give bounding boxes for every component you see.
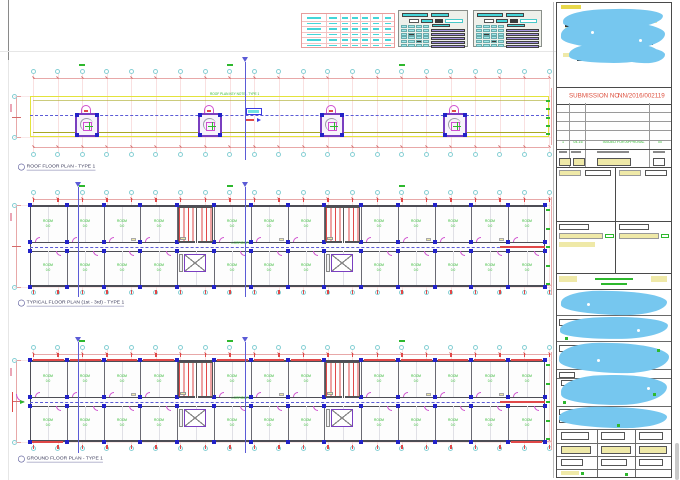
green-speck [657, 349, 660, 352]
schedule-cell [416, 36, 422, 39]
dimension-text-mark [10, 368, 12, 376]
schedule-cell [416, 25, 422, 28]
schedule-cell [483, 33, 489, 36]
column [396, 285, 400, 289]
schedule-cell [408, 36, 414, 39]
bottom-grid-line [635, 429, 636, 477]
column [506, 404, 510, 408]
room-label: ROOM [116, 418, 127, 422]
elevator-core [184, 409, 206, 427]
door-arc [35, 392, 40, 397]
table-text-mark [362, 39, 368, 41]
wall-tick [524, 445, 526, 449]
revision-table-bottom [557, 149, 671, 150]
table-grid-line [302, 43, 394, 44]
column [359, 440, 363, 444]
room-label: 0.0 [374, 224, 385, 228]
revision-col-line [649, 103, 650, 167]
schedule-cell [401, 25, 407, 28]
blob-redaction [560, 316, 668, 340]
grid-bubble [375, 190, 380, 195]
column [322, 440, 326, 444]
vent-pipe-mark [84, 110, 88, 112]
door-arc [366, 237, 371, 242]
column [65, 203, 69, 207]
schedule-header-chip [510, 19, 518, 23]
schedule-cell [498, 44, 504, 47]
room-label: 0.0 [411, 379, 422, 383]
highlighted-wall [33, 359, 64, 361]
label-box [639, 432, 663, 440]
wall-tick [352, 290, 354, 294]
label-box [645, 170, 667, 176]
partition-wall [471, 362, 472, 397]
door-arc [72, 392, 77, 397]
room-label: ROOM [116, 219, 127, 223]
roof-plan-title: ROOF FLOOR PLAN - TYPE 1 [18, 163, 95, 170]
grid-bubble [497, 69, 502, 74]
grid-bubble [350, 345, 355, 350]
highlight-chip [180, 237, 186, 240]
partition-wall [398, 362, 399, 397]
wall-tick [254, 445, 256, 449]
grid-bubble [350, 190, 355, 195]
room-label: ROOM [300, 374, 311, 378]
schedule-header-chip [506, 13, 524, 17]
green-note-mark [595, 278, 633, 280]
schedule-cell [476, 33, 482, 36]
grid-bubble [301, 152, 306, 157]
column [198, 133, 202, 137]
grid-bubble [448, 345, 453, 350]
grid-bubble [129, 69, 134, 74]
wall-tick [155, 198, 157, 202]
wall-tick [327, 290, 329, 294]
green-speck [565, 337, 568, 340]
door-arc [293, 392, 298, 397]
dimension-text-mark [546, 364, 550, 366]
room-label: 0.0 [116, 423, 127, 427]
header-label-mark [571, 151, 581, 153]
label-box [619, 224, 649, 230]
grid-bubble [252, 345, 257, 350]
table-text-mark [385, 34, 392, 36]
section-divider [557, 315, 671, 316]
grid-bubble [301, 69, 306, 74]
room-label: ROOM [374, 219, 385, 223]
column [469, 249, 473, 253]
schedule-lavender-row [506, 45, 539, 48]
parapet-inner-line [33, 100, 546, 101]
wall-tick [327, 198, 329, 202]
dimension-text-mark [546, 108, 550, 110]
room-label: ROOM [411, 263, 422, 267]
grid-bubble [424, 152, 429, 157]
table-text-mark [385, 28, 392, 30]
grid-bubble [153, 190, 158, 195]
room-label: ROOM [227, 374, 238, 378]
column [506, 358, 510, 362]
blob-redaction [561, 290, 667, 316]
room-label: ROOM [227, 219, 238, 223]
grid-bubble [375, 345, 380, 350]
partition-wall [508, 207, 509, 242]
wall-tick [499, 290, 501, 294]
column [322, 404, 326, 408]
schedule-cell [408, 29, 414, 32]
section-divider [557, 273, 671, 274]
grid-bubble [31, 152, 36, 157]
section-flag-icon [75, 337, 81, 342]
table-text-mark [385, 39, 392, 41]
grid-bubble [203, 152, 208, 157]
label-box [559, 372, 575, 378]
table-text-mark [385, 45, 392, 47]
wall-tick [180, 445, 182, 449]
dimension-text-mark [546, 125, 550, 127]
wall-tick [524, 353, 526, 357]
grid-bubble [129, 345, 134, 350]
column [102, 240, 106, 244]
room-label: 0.0 [43, 268, 54, 272]
plan-title-text: ROOF FLOOR PLAN - TYPE 1 [27, 163, 96, 170]
grid-bubble [203, 190, 208, 195]
room-label: 0.0 [484, 423, 495, 427]
dimension-text-mark [546, 209, 550, 211]
partition-wall [324, 251, 325, 285]
column [433, 249, 437, 253]
roof-stair-core [75, 113, 99, 137]
column [138, 249, 142, 253]
level-mark [79, 64, 85, 66]
schedule-cell [483, 40, 489, 43]
partition-wall [67, 406, 68, 440]
room-label: 0.0 [80, 379, 91, 383]
door-arc [145, 237, 150, 242]
partition-wall [361, 207, 362, 242]
schedule-cell [401, 33, 407, 36]
roof-note: ROOF PLAN KEY NOTE - TYPE 1 [210, 92, 266, 96]
grid-bubble [522, 152, 527, 157]
partition-wall [214, 362, 215, 397]
service-duct [179, 409, 183, 427]
column [28, 203, 32, 207]
grid-bubble [325, 69, 330, 74]
schedule-header-chip [435, 19, 443, 23]
grid-bubble [227, 345, 232, 350]
wall-tick [377, 198, 379, 202]
revision-description: ISSUED FOR APPROVAL [603, 140, 632, 144]
door-schedule-table [398, 10, 468, 47]
grid-bubble [325, 345, 330, 350]
column [320, 133, 324, 137]
highlight-chip [499, 238, 504, 241]
column [469, 203, 473, 207]
detail-bubble-icon [18, 455, 25, 462]
partition-wall [398, 406, 399, 440]
wall-tick [499, 445, 501, 449]
grid-bubble [153, 69, 158, 74]
room-label: 0.0 [300, 423, 311, 427]
wall-tick [549, 353, 551, 357]
door-arc [513, 237, 518, 242]
door-arc [513, 392, 518, 397]
table-text-mark [307, 17, 320, 19]
room-label: ROOM [263, 418, 274, 422]
partition-wall [177, 251, 178, 285]
section-line [245, 342, 246, 453]
schedule-header-chip [496, 19, 508, 23]
corridor-red-segment [500, 401, 545, 403]
schedule-cell [483, 44, 489, 47]
column [543, 404, 547, 408]
schedule-cell [408, 33, 414, 36]
wall-tick [549, 445, 551, 449]
table-text-mark [373, 17, 380, 19]
wall-tick [278, 290, 280, 294]
column [433, 440, 437, 444]
entrance-arrow-icon [20, 400, 25, 404]
green-speck [617, 424, 620, 427]
dimension-text-mark [546, 420, 550, 422]
schedule-header-chip [431, 13, 449, 17]
room-label: ROOM [80, 418, 91, 422]
schedule-cell [401, 36, 407, 39]
grid-bubble [522, 190, 527, 195]
grid-bubble [178, 152, 183, 157]
table-text-mark [362, 34, 368, 36]
column [340, 133, 344, 137]
column [396, 358, 400, 362]
highlighted-wall [401, 359, 432, 361]
green-chip [605, 234, 614, 238]
column [359, 249, 363, 253]
door-arc [256, 392, 261, 397]
table-text-mark [385, 23, 392, 25]
column [396, 440, 400, 444]
highlight-chip [619, 170, 641, 176]
column [212, 404, 216, 408]
grid-bubble [129, 190, 134, 195]
revision-initials: 00 [655, 140, 665, 144]
green-speck [625, 473, 628, 476]
highlight-chip [327, 392, 333, 395]
column [469, 404, 473, 408]
schedule-cell [423, 44, 429, 47]
grid-bubble [424, 69, 429, 74]
grid-bubble [424, 190, 429, 195]
stair-flight-divider [196, 208, 197, 243]
column [469, 358, 473, 362]
key-plan-arrow-icon [257, 118, 261, 122]
room-label: 0.0 [521, 224, 532, 228]
room-label: ROOM [447, 418, 458, 422]
entrance-dim-line [12, 392, 13, 412]
table-grid-line [340, 14, 341, 47]
room-label: ROOM [227, 263, 238, 267]
header-label-mark [597, 151, 629, 153]
table-grid-line [382, 14, 383, 47]
scrollbar[interactable] [675, 443, 679, 480]
wall-tick [33, 353, 35, 357]
column [175, 249, 179, 253]
room-label: ROOM [43, 219, 54, 223]
wall-tick [205, 353, 207, 357]
grid-bubble [301, 345, 306, 350]
grid-bubble [399, 69, 404, 74]
schedule-lavender-row [506, 41, 539, 44]
room-label: ROOM [263, 374, 274, 378]
table-text-mark [352, 17, 358, 19]
section-divider [557, 221, 671, 222]
grid-bubble [31, 69, 36, 74]
room-label: 0.0 [227, 224, 238, 228]
partition-wall [251, 251, 252, 285]
grid-bubble [252, 152, 257, 157]
table-text-mark [342, 39, 348, 41]
highlight-chip [651, 276, 667, 282]
schedule-cell [491, 33, 497, 36]
section-flag-icon [242, 182, 248, 187]
column [286, 358, 290, 362]
room-label: 0.0 [447, 423, 458, 427]
wall-tick [377, 445, 379, 449]
schedule-cell [483, 36, 489, 39]
wall-tick [106, 198, 108, 202]
grid-bubble [399, 190, 404, 195]
door-arc [403, 392, 408, 397]
table-text-mark [329, 45, 337, 47]
column [102, 203, 106, 207]
table-text-mark [342, 34, 348, 36]
wall-tick [499, 198, 501, 202]
partition-wall [508, 362, 509, 397]
revision-no: 1 [560, 140, 565, 144]
window-schedule-table [473, 10, 542, 47]
section-line [78, 187, 79, 297]
room-label: ROOM [374, 263, 385, 267]
schedule-cell [498, 40, 504, 43]
dimension-text-mark [10, 104, 12, 112]
highlighted-wall [511, 441, 542, 443]
grid-bubble [55, 152, 60, 157]
column [286, 440, 290, 444]
wall-tick [57, 353, 59, 357]
grid-bubble [325, 152, 330, 157]
schedule-cell [498, 25, 504, 28]
column [433, 395, 437, 399]
corridor-red-segment [500, 246, 545, 248]
stair-flight-divider [343, 208, 344, 243]
room-label: 0.0 [153, 379, 164, 383]
wall-tick [82, 445, 84, 449]
room-label: 0.0 [263, 379, 274, 383]
wall-tick [229, 290, 231, 294]
wall-tick [499, 353, 501, 357]
stair-flight-divider [196, 363, 197, 398]
schedule-cell [476, 29, 482, 32]
column [249, 440, 253, 444]
parapet-outline [30, 96, 549, 137]
room-label: ROOM [484, 219, 495, 223]
room-label: 0.0 [521, 268, 532, 272]
column [102, 358, 106, 362]
green-chip [661, 234, 669, 238]
wall-tick [278, 353, 280, 357]
schedule-cell [423, 25, 429, 28]
wall-tick [57, 445, 59, 449]
room-label: 0.0 [43, 224, 54, 228]
blob-speck [639, 39, 642, 42]
room-label: 0.0 [227, 268, 238, 272]
room-label: 0.0 [153, 423, 164, 427]
schedule-header-chip [477, 13, 503, 17]
wall-tick [229, 198, 231, 202]
partition-wall [104, 362, 105, 397]
dimension-text-mark [10, 213, 12, 221]
table-text-mark [352, 23, 358, 25]
level-mark [399, 64, 405, 66]
grid-bubble [129, 152, 134, 157]
grid-bubble [350, 69, 355, 74]
grid-bubble [252, 190, 257, 195]
schedule-cell [401, 29, 407, 32]
partition-wall [67, 251, 68, 285]
partition-wall [67, 207, 68, 242]
partition-wall [435, 251, 436, 285]
grid-bubble [227, 152, 232, 157]
column [249, 358, 253, 362]
grid-bubble [325, 190, 330, 195]
column [359, 404, 363, 408]
bottom-grid-line [557, 469, 671, 470]
grid-bubble [227, 69, 232, 74]
door-arc [293, 237, 298, 242]
column [65, 249, 69, 253]
grid-bubble [473, 190, 478, 195]
revision-row-line [557, 140, 671, 141]
grid-line [549, 192, 550, 292]
column [65, 440, 69, 444]
door-arc [219, 392, 224, 397]
room-label: 0.0 [411, 224, 422, 228]
table-text-mark [362, 45, 368, 47]
partition-wall [471, 406, 472, 440]
dimension-tick [32, 76, 35, 79]
wall-tick [450, 445, 452, 449]
partition-wall [435, 406, 436, 440]
dimension-text-mark [546, 383, 550, 385]
schedule-cell [401, 40, 407, 43]
schedule-cell [416, 29, 422, 32]
column [249, 395, 253, 399]
schedule-cell [498, 36, 504, 39]
wall-tick [131, 290, 133, 294]
room-label: 0.0 [484, 268, 495, 272]
column [65, 404, 69, 408]
schedule-lavender-row [431, 37, 465, 40]
revision-col-line [585, 103, 586, 167]
column [543, 440, 547, 444]
wall-tick [131, 198, 133, 202]
room-label: ROOM [153, 418, 164, 422]
service-duct [326, 254, 330, 272]
revision-row-line [557, 130, 671, 131]
grid-bubble [178, 69, 183, 74]
wall-tick [303, 445, 305, 449]
partition-wall [288, 207, 289, 242]
blob-speck [597, 359, 600, 362]
